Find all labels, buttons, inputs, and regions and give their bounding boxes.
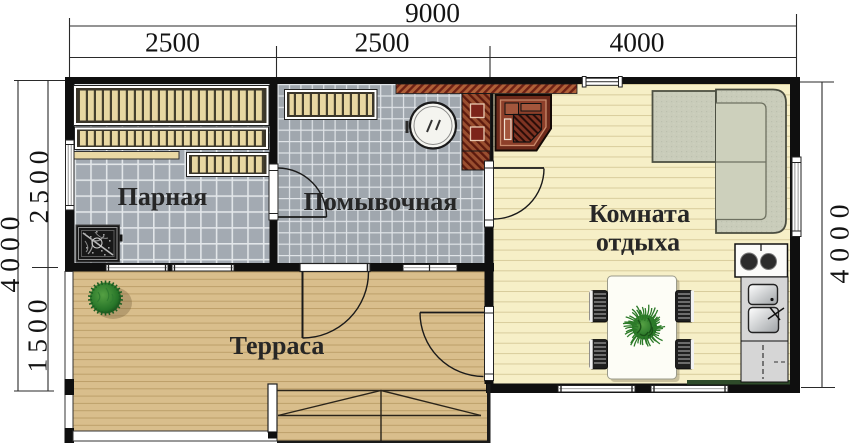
svg-text:Терраса: Терраса [230, 331, 325, 360]
svg-text:Помывочная: Помывочная [304, 187, 458, 216]
svg-text:1500: 1500 [22, 294, 53, 373]
svg-text:2500: 2500 [145, 27, 200, 58]
svg-text:4000: 4000 [0, 210, 25, 293]
svg-text:2500: 2500 [23, 145, 54, 224]
svg-text:4000: 4000 [824, 197, 850, 284]
svg-text:2500: 2500 [355, 27, 410, 58]
svg-text:отдыха: отдыха [596, 228, 680, 257]
svg-text:Парная: Парная [118, 182, 208, 211]
svg-text:4000: 4000 [610, 27, 665, 58]
svg-text:Комната: Комната [589, 199, 690, 228]
svg-text:9000: 9000 [405, 0, 460, 28]
